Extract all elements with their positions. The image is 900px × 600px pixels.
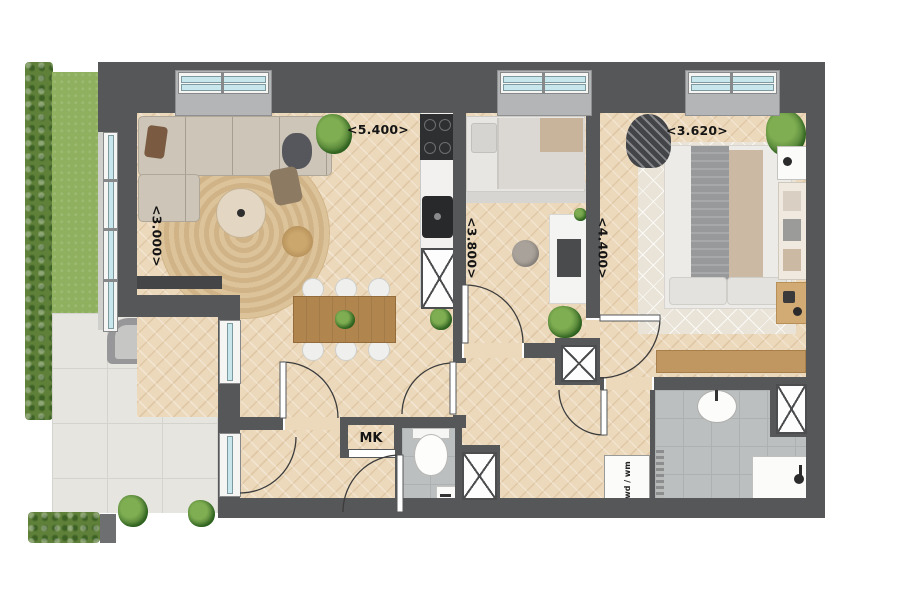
dim-bedroom2-depth: <4.400>: [595, 217, 611, 279]
floor-plan: wd / wm MK: [0, 0, 900, 600]
living-innerhall-door-arc: [402, 363, 453, 414]
toilet-door-leaf: [397, 455, 403, 512]
living-hall-door-leaf: [280, 362, 286, 418]
bedroom2-door-arc: [600, 318, 660, 378]
dim-bedroom2-width: <3.620>: [666, 122, 728, 138]
door-swing-overlay: [0, 0, 900, 600]
toilet-door-arc: [343, 455, 400, 512]
bedroom2-door-leaf: [600, 315, 660, 321]
bathroom-door-arc: [559, 390, 604, 435]
dim-living-depth: <3.000>: [149, 205, 165, 267]
dim-bedroom1-depth: <3.800>: [464, 217, 480, 279]
front-door-arc: [240, 437, 296, 493]
living-innerhall-door-leaf: [450, 362, 456, 414]
bedroom1-door-arc: [465, 285, 523, 343]
living-hall-door-arc: [283, 362, 338, 418]
bedroom1-door-leaf: [462, 285, 468, 343]
dim-living-width: <5.400>: [347, 121, 409, 137]
bathroom-door-leaf: [601, 390, 607, 435]
